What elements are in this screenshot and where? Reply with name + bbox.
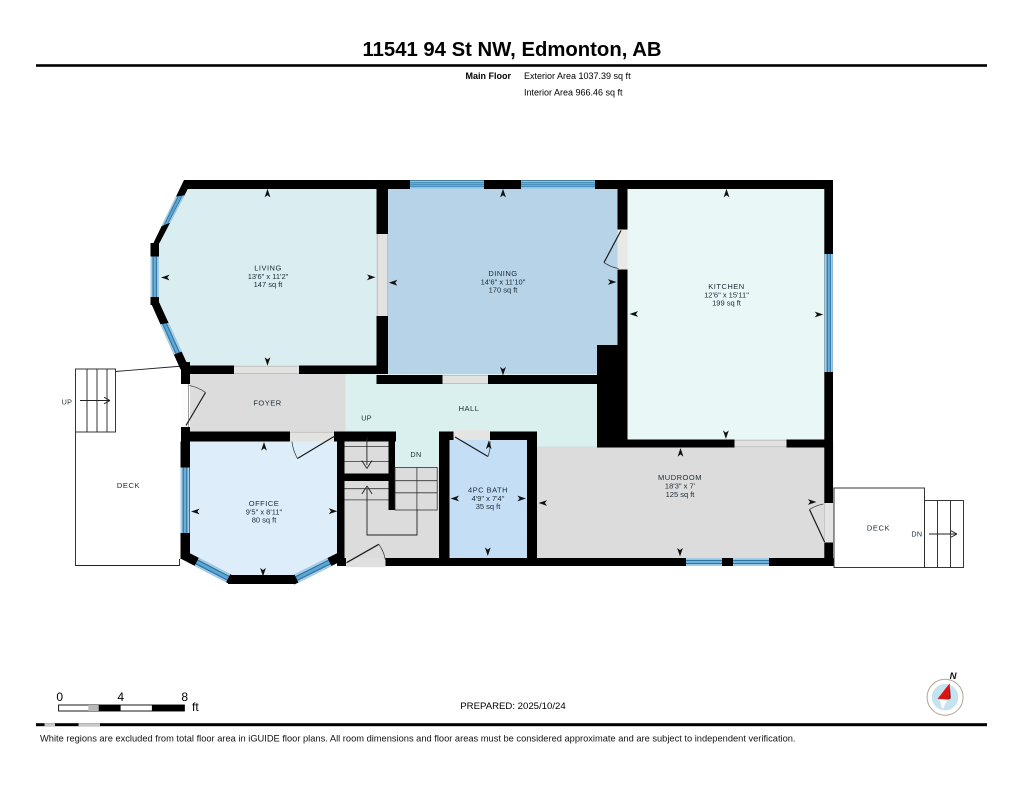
- svg-text:199 sq ft: 199 sq ft: [712, 299, 742, 308]
- svg-text:11541 94 St NW, Edmonton, AB: 11541 94 St NW, Edmonton, AB: [362, 39, 661, 61]
- svg-text:DECK: DECK: [867, 524, 890, 533]
- svg-text:147 sq ft: 147 sq ft: [254, 280, 284, 289]
- svg-text:UP: UP: [62, 398, 73, 407]
- svg-text:DN: DN: [410, 450, 421, 459]
- svg-text:0: 0: [56, 690, 63, 704]
- svg-text:4: 4: [117, 690, 124, 704]
- svg-text:HALL: HALL: [459, 404, 480, 413]
- svg-text:125 sq ft: 125 sq ft: [666, 490, 696, 499]
- svg-text:80 sq ft: 80 sq ft: [252, 516, 278, 525]
- svg-text:DN: DN: [911, 530, 922, 539]
- svg-text:Interior Area 966.46 sq ft: Interior Area 966.46 sq ft: [524, 88, 623, 98]
- svg-text:DECK: DECK: [117, 481, 140, 490]
- svg-text:Main Floor: Main Floor: [466, 71, 512, 81]
- svg-text:35 sq ft: 35 sq ft: [476, 502, 502, 511]
- svg-text:Exterior Area 1037.39 sq ft: Exterior Area 1037.39 sq ft: [524, 71, 631, 81]
- svg-text:PREPARED: 2025/10/24: PREPARED: 2025/10/24: [460, 701, 566, 712]
- svg-text:White regions are excluded fro: White regions are excluded from total fl…: [40, 734, 796, 744]
- svg-text:UP: UP: [361, 413, 372, 422]
- svg-text:ft: ft: [192, 700, 199, 714]
- svg-text:N: N: [950, 671, 958, 682]
- svg-text:170 sq ft: 170 sq ft: [489, 286, 519, 295]
- svg-text:8: 8: [181, 690, 188, 704]
- svg-text:FOYER: FOYER: [253, 399, 281, 408]
